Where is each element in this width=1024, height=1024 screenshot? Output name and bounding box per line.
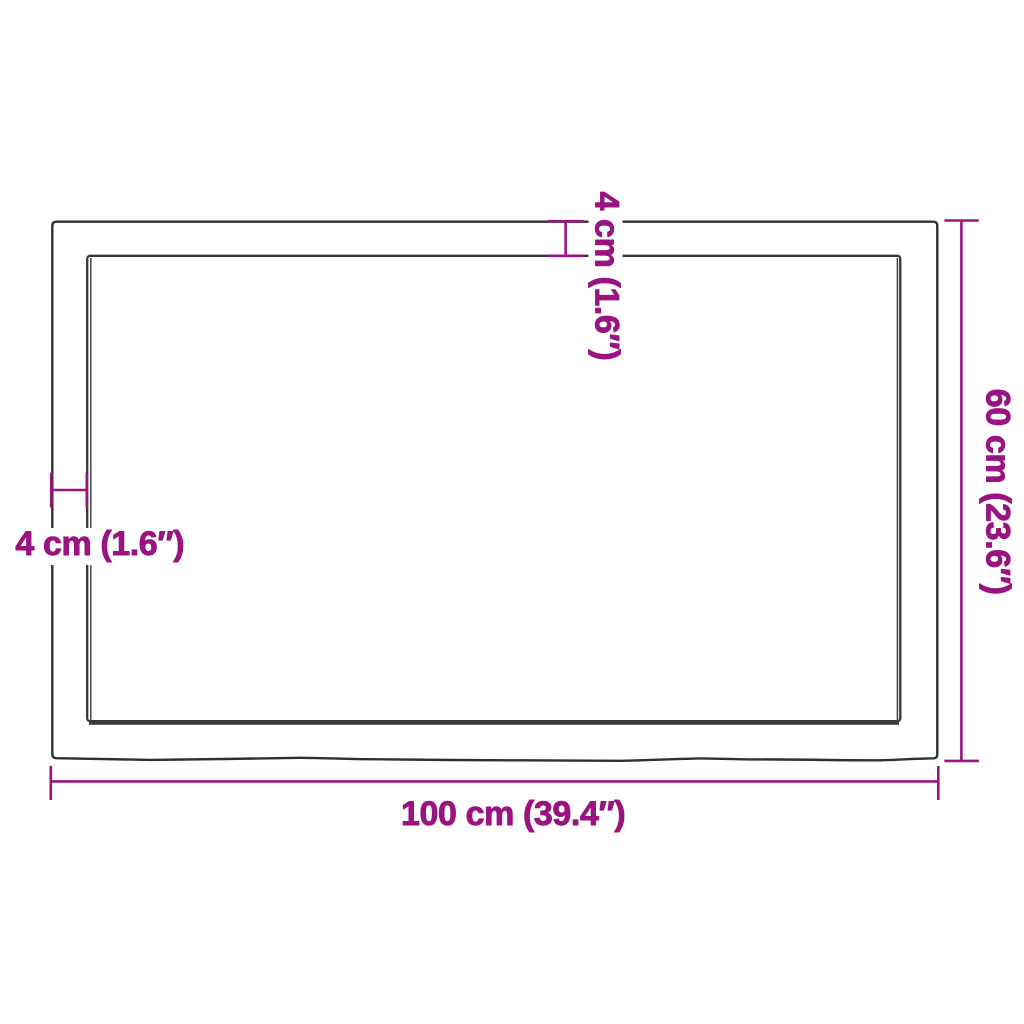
svg-text:60 cm (23.6″): 60 cm (23.6″) — [979, 389, 1017, 595]
svg-text:4 cm (1.6″): 4 cm (1.6″) — [15, 525, 184, 563]
svg-text:100 cm (39.4″): 100 cm (39.4″) — [401, 795, 625, 833]
svg-text:4 cm (1.6″): 4 cm (1.6″) — [588, 192, 626, 361]
